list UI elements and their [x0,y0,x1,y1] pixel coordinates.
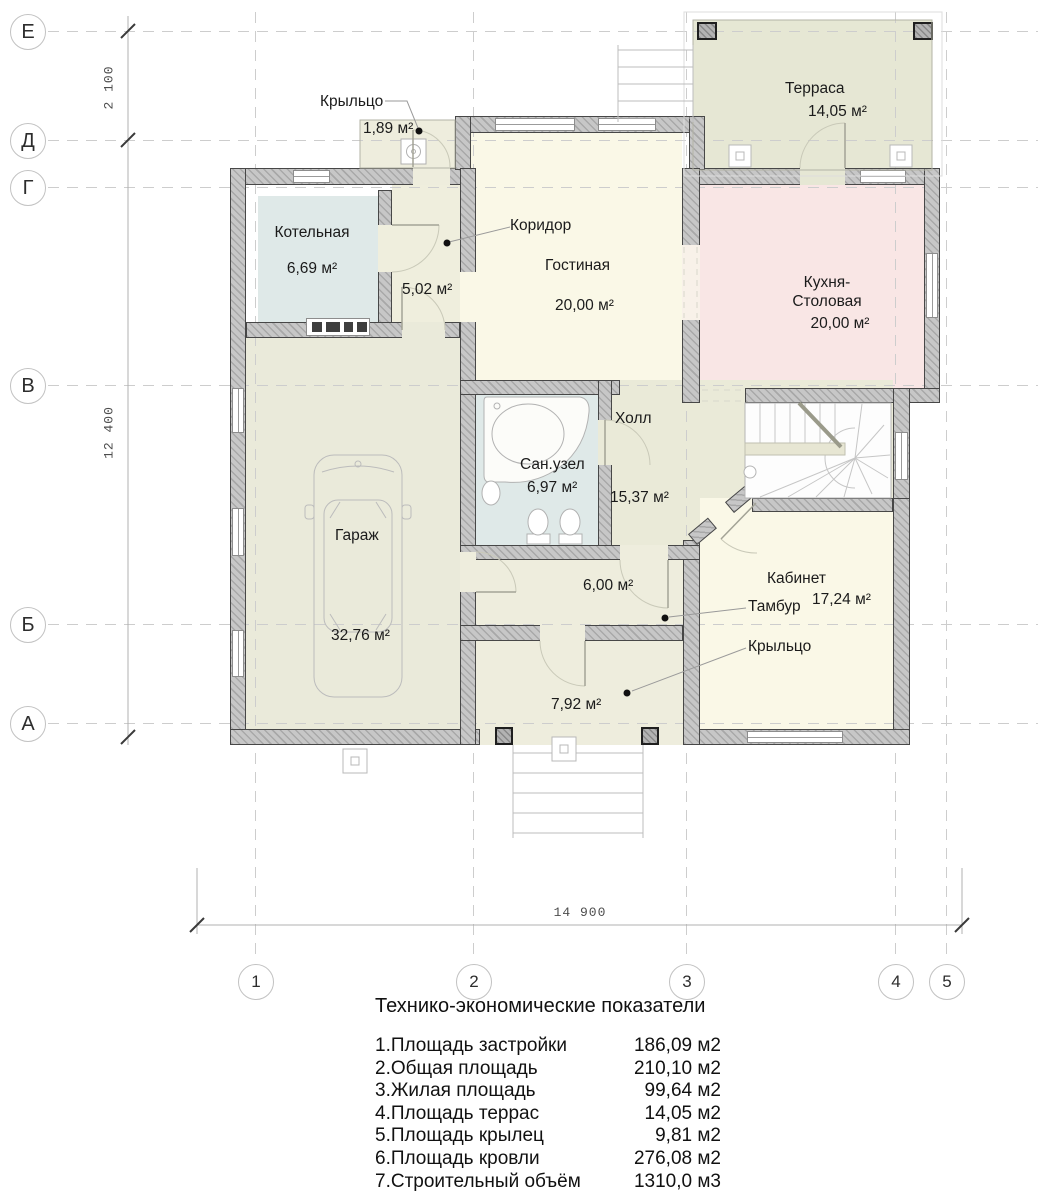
label-tambour-name: Тамбур [748,598,801,616]
wall-segment [752,498,893,512]
grid-line-row-a [48,723,1038,724]
boiler-equipment-icon [344,322,353,332]
window [598,118,656,131]
label-terrace-name: Терраса [785,80,844,98]
label-garage-area: 32,76 м² [331,627,390,645]
label-living-area: 20,00 м² [555,297,614,315]
tech-row-label: 3.Жилая площадь [375,1080,606,1103]
window [926,253,938,318]
label-bathroom-area: 6,97 м² [527,479,577,497]
grid-line-col-1 [255,12,256,958]
label-porch-top-area: 1,89 м² [363,120,413,138]
tech-table-row: 5.Площадь крылец9,81 м2 [375,1125,721,1148]
axis-bubble-row-g: Г [10,170,46,206]
dimension-bottom: 14 900 [540,905,620,920]
window [860,170,906,183]
grid-line-row-e [48,31,1038,32]
door-opening [620,545,668,560]
column-pillar [495,727,513,745]
wall-segment [460,168,476,745]
boiler-equipment-icon [357,322,367,332]
axis-bubble-row-a: А [10,706,46,742]
wall-segment [455,116,471,170]
entrance-steps [513,745,643,838]
label-garage-name: Гараж [335,527,379,545]
tech-row-value: 99,64 м2 [606,1080,721,1103]
label-kitchen-area: 20,00 м² [757,314,897,333]
label-tambour-area: 6,00 м² [583,577,633,595]
label-porch-bottom-name: Крыльцо [748,638,811,656]
room-boiler-area [258,196,378,322]
wall-segment [893,498,910,745]
label-cabinet-name: Кабинет [767,570,826,588]
tech-table-row: 4.Площадь террас14,05 м2 [375,1103,721,1126]
label-bathroom-name: Сан.узел [520,456,585,474]
label-porch-top-name: Крыльцо [320,93,383,111]
door-opening [378,225,392,272]
label-cabinet-area: 17,24 м² [812,591,871,609]
grid-line-row-d [48,140,1038,141]
column-pillar [697,22,717,40]
axis-bubble-col-4: 4 [878,964,914,1000]
boiler-equipment-icon [326,322,340,332]
tech-row-value: 14,05 м2 [606,1103,721,1126]
label-boiler-area: 6,69 м² [252,260,372,278]
wall-segment [460,380,620,395]
door-opening [682,245,700,320]
window [495,118,575,131]
window [232,388,244,433]
tech-row-label: 6.Площадь кровли [375,1148,606,1171]
wall-segment [230,729,480,745]
door-opening [402,322,445,338]
axis-bubble-row-v: В [10,368,46,404]
tech-row-value: 1310,0 м3 [606,1171,721,1194]
tech-row-value: 186,09 м2 [606,1035,721,1058]
wall-segment [689,116,705,170]
axis-bubble-row-b: Б [10,607,46,643]
door-opening [413,168,450,185]
label-kitchen-name-line1: Кухня- [804,274,851,291]
door-opening [540,625,585,641]
wall-segment [745,388,940,403]
tech-table-row: 2.Общая площадь210,10 м2 [375,1058,721,1081]
tech-row-label: 4.Площадь террас [375,1103,606,1126]
window [747,731,843,743]
label-boiler-name: Котельная [252,224,372,242]
column-pillar [913,22,933,40]
tech-table-title: Технико-экономические показатели [375,995,721,1018]
tech-table-row: 6.Площадь кровли276,08 м2 [375,1148,721,1171]
tech-row-label: 5.Площадь крылец [375,1125,606,1148]
room-cabinet-area [700,498,893,745]
dimension-left: 12 400 [102,403,117,463]
tech-table-rows: 1.Площадь застройки186,09 м22.Общая площ… [375,1035,721,1193]
tech-table-row: 3.Жилая площадь99,64 м2 [375,1080,721,1103]
tech-row-label: 7.Строительный объём [375,1171,606,1194]
tech-table-row: 7.Строительный объём1310,0 м3 [375,1171,721,1194]
label-corridor-area: 5,02 м² [402,281,452,299]
axis-bubble-row-d: Д [10,123,46,159]
tech-table-row: 1.Площадь застройки186,09 м2 [375,1035,721,1058]
tech-row-value: 276,08 м2 [606,1148,721,1171]
label-kitchen: Кухня- Столовая 20,00 м² [757,273,897,333]
door-opening [460,552,476,592]
label-terrace-area: 14,05 м² [808,103,867,121]
door-opening [598,420,612,465]
boiler-equipment-icon [312,322,322,332]
label-kitchen-name-line2: Столовая [792,293,861,310]
room-corridor-area [392,185,460,322]
window [895,432,908,480]
label-corridor-name: Коридор [510,217,571,235]
tech-row-label: 2.Общая площадь [375,1058,606,1081]
axis-bubble-col-5: 5 [929,964,965,1000]
wall-segment [598,380,612,555]
label-porch-bottom-area: 7,92 м² [551,696,601,714]
window [232,630,244,677]
tech-row-value: 9,81 м2 [606,1125,721,1148]
door-opening [460,272,476,322]
wall-segment [455,116,705,133]
window [293,170,330,183]
axis-bubble-col-1: 1 [238,964,274,1000]
door-opening [800,168,845,185]
grid-line-col-3 [686,12,687,958]
grid-line-row-g [48,187,1038,188]
label-hall-name: Холл [615,410,652,428]
grid-line-col-5 [946,12,947,958]
window [232,508,244,556]
tech-row-label: 1.Площадь застройки [375,1035,606,1058]
terrace-steps [618,45,693,122]
floor-plan-sheet: Крыльцо 1,89 м² Котельная 6,69 м² Коридо… [0,0,1052,1200]
wall-segment [683,540,700,745]
label-living-name: Гостиная [545,257,610,275]
axis-bubble-row-e: Е [10,14,46,50]
dimension-top-left: 2 100 [102,63,117,113]
column-pillar [641,727,659,745]
tech-row-value: 210,10 м2 [606,1058,721,1081]
label-hall-area: 15,37 м² [610,489,669,507]
tech-indicators-table: Технико-экономические показатели 1.Площа… [375,995,721,1193]
